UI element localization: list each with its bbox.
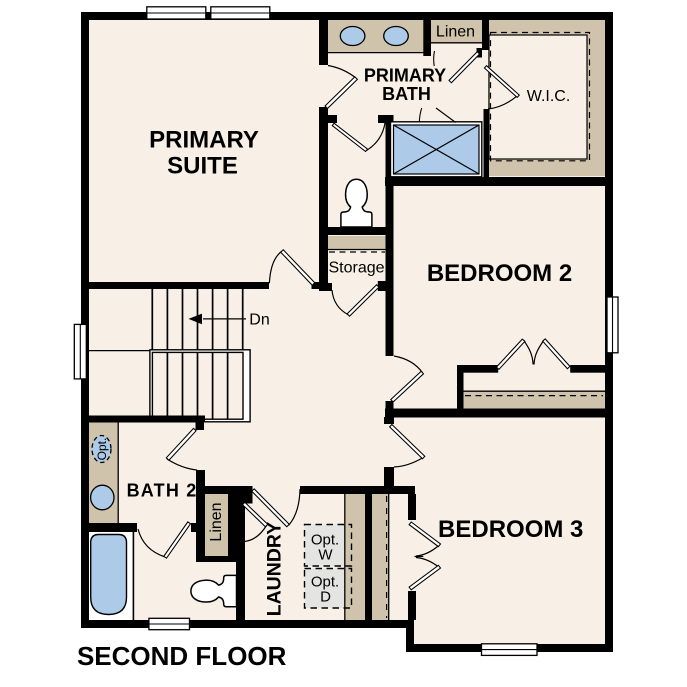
svg-text:W: W bbox=[318, 547, 333, 564]
svg-text:PRIMARY: PRIMARY bbox=[364, 66, 446, 86]
svg-text:Dn: Dn bbox=[249, 312, 269, 329]
svg-text:W.I.C.: W.I.C. bbox=[527, 88, 571, 105]
svg-text:Opt.: Opt. bbox=[95, 438, 109, 461]
svg-text:PRIMARY: PRIMARY bbox=[149, 127, 259, 154]
svg-text:BEDROOM 2: BEDROOM 2 bbox=[427, 260, 572, 287]
svg-text:SUITE: SUITE bbox=[167, 153, 238, 180]
svg-text:BEDROOM 3: BEDROOM 3 bbox=[438, 516, 583, 543]
svg-text:SECOND FLOOR: SECOND FLOOR bbox=[77, 641, 287, 671]
svg-text:LAUNDRY: LAUNDRY bbox=[263, 522, 285, 617]
svg-text:Linen: Linen bbox=[208, 502, 225, 541]
svg-text:Storage: Storage bbox=[328, 260, 384, 277]
svg-text:D: D bbox=[320, 589, 331, 606]
svg-text:BATH 2: BATH 2 bbox=[127, 481, 198, 501]
svg-text:BATH: BATH bbox=[382, 84, 431, 104]
svg-text:Linen: Linen bbox=[436, 24, 475, 41]
